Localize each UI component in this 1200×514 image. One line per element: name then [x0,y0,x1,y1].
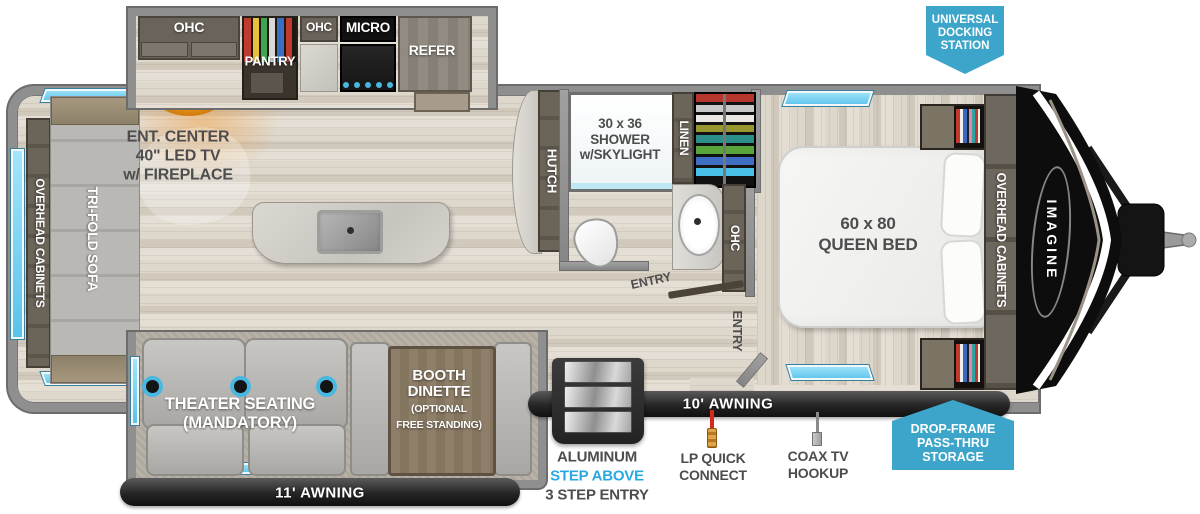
coax-label: COAX TV HOOKUP [788,448,849,482]
bed-label: 60 x 80 QUEEN BED [818,213,917,255]
hutch-label: HUTCH [544,149,559,194]
step-tread-1 [564,361,632,383]
theater-label: THEATER SEATING (MANDATORY) [165,395,315,433]
wardrobe-rod [723,94,726,186]
nightstand-top [920,104,988,150]
step-tread-2 [564,386,632,408]
kitchen-counter [300,44,338,92]
pantry-label: PANTRY [245,55,296,70]
steps-label: ALUMINUM STEP ABOVE 3 STEP ENTRY [545,448,648,505]
main-entry-label: ENTRY [730,311,744,352]
sofa-armrest-bottom [51,355,139,383]
dinette-bench-right [494,342,532,476]
coax-line [816,412,819,434]
bed-pillow-top [940,152,986,238]
bath-ohc-label: OHC [727,225,741,251]
kitchen-ohc-drawer-1 [141,42,188,57]
bedroom-top-window [781,90,875,107]
sofa-armrest-top [51,97,139,125]
lp-connector-line [710,410,714,430]
dinette-bench-left [350,342,390,476]
kitchen-ohc-mid-label: OHC [306,21,332,35]
awning-10ft-label: 10' AWNING [683,395,774,412]
bath-sink [678,194,720,256]
nightstand-books-2 [956,344,980,382]
rear-overhead-cabinets-label: OVERHEAD CABINETS [32,178,46,307]
imagine-logo: IMAGINE [1044,200,1060,281]
microwave-label: MICRO [346,20,390,36]
sofa-label: TRI-FOLD SOFA [85,187,101,292]
cupholder-2 [234,380,247,393]
ent-center-label: ENT. CENTER 40" LED TV w/ FIREPLACE [123,128,233,185]
awning-11ft-label: 11' AWNING [275,484,365,501]
rv-floorplan: OVERHEAD CABINETS TRI-FOLD SOFA ENT. CEN… [0,0,1200,514]
dinette-label: BOOTH DINETTE (OPTIONAL FREE STANDING) [396,368,482,432]
lp-label: LP QUICK CONNECT [679,450,747,484]
shower-label: 30 x 36 SHOWER w/SKYLIGHT [580,116,661,163]
bath-wall-right [746,184,754,296]
linen-label: LINEN [676,120,690,155]
kitchen-island [252,202,450,264]
wardrobe [694,92,756,188]
kitchen-ohc-label: OHC [174,19,205,35]
lp-connector-icon [707,428,717,448]
bath-wall-left [560,90,568,270]
coax-connector-icon [812,432,822,446]
cupholder-1 [146,380,159,393]
rear-left-window [10,148,25,340]
slideout-window-left [130,356,140,426]
bedroom-bottom-window [785,364,875,381]
stove-knob [376,82,382,88]
stove-knob [387,82,393,88]
docking-station-badge: UNIVERSAL DOCKING STATION [926,6,1004,74]
nightstand-books [956,109,980,143]
stove-knob [343,82,349,88]
propane-cover [1118,204,1164,276]
bath-faucet [694,218,701,225]
kitchen-ohc-drawer-2 [191,42,237,57]
stove-knob [354,82,360,88]
bed-pillow-bottom [940,239,986,325]
front-cap [1000,78,1200,402]
island-faucet [347,227,354,234]
cupholder-3 [320,380,333,393]
nightstand-bottom [920,338,988,390]
step-tread-3 [564,411,632,433]
jack-tip [1182,233,1196,247]
refrigerator-label: REFER [409,42,455,58]
entry-steps [552,358,644,444]
refer-drawer [414,92,470,112]
stove [340,44,396,92]
pantry-cabinet-panel [250,72,284,94]
stove-knob [365,82,371,88]
